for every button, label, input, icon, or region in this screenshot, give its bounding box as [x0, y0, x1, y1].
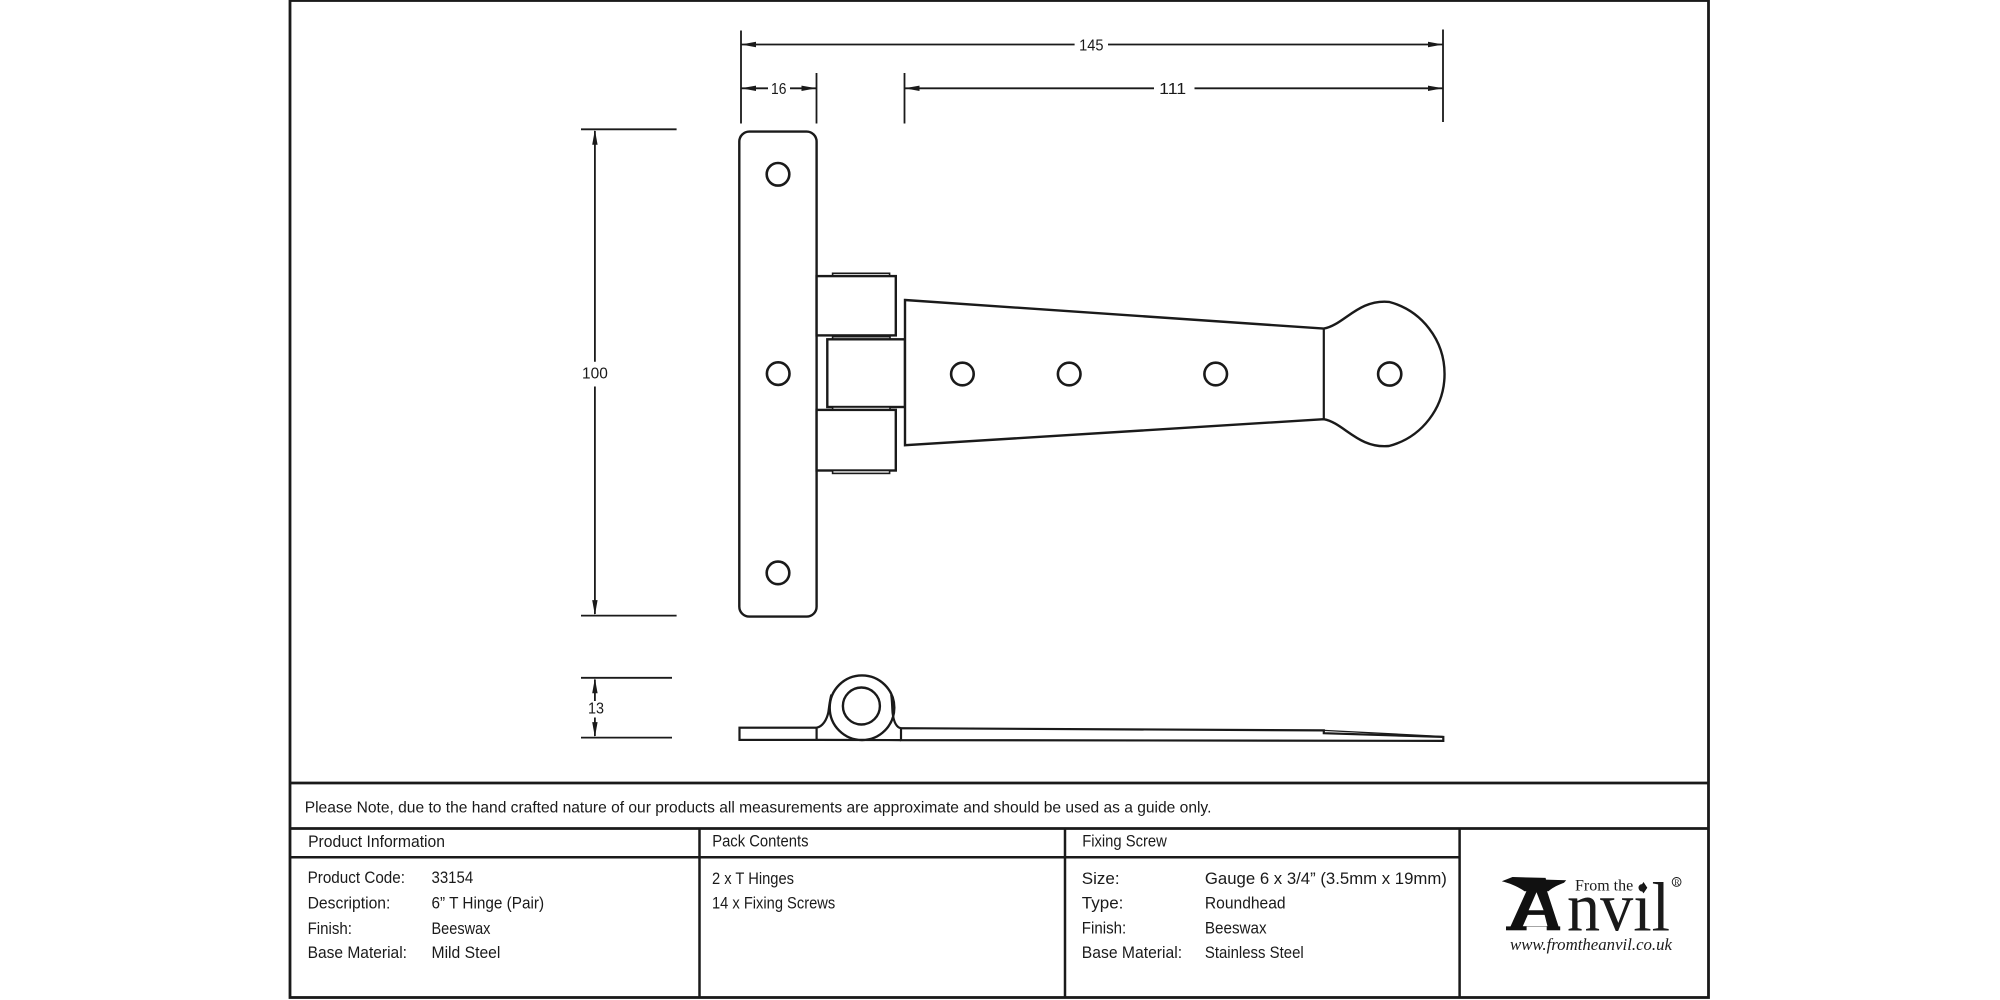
- svg-text:Roundhead: Roundhead: [1205, 894, 1286, 913]
- svg-text:13: 13: [588, 701, 604, 718]
- svg-text:33154: 33154: [432, 868, 474, 887]
- svg-text:16: 16: [771, 81, 786, 98]
- svg-text:Stainless Steel: Stainless Steel: [1205, 943, 1304, 962]
- svg-text:Type:: Type:: [1082, 894, 1124, 913]
- svg-text:Pack Contents: Pack Contents: [712, 832, 808, 851]
- svg-text:Beeswax: Beeswax: [432, 919, 491, 938]
- svg-text:Beeswax: Beeswax: [1205, 919, 1267, 938]
- svg-text:Finish:: Finish:: [1082, 919, 1126, 938]
- svg-text:Mild Steel: Mild Steel: [432, 943, 501, 962]
- svg-text:100: 100: [582, 366, 608, 383]
- svg-text:14 x Fixing Screws: 14 x Fixing Screws: [712, 894, 835, 913]
- svg-text:Finish:: Finish:: [308, 919, 352, 938]
- svg-text:Please Note, due to the hand c: Please Note, due to the hand crafted nat…: [305, 800, 1212, 817]
- svg-text:Gauge 6 x 3/4” (3.5mm x 19mm): Gauge 6 x 3/4” (3.5mm x 19mm): [1205, 869, 1447, 888]
- svg-text:Base Material:: Base Material:: [308, 943, 407, 962]
- svg-text:Description:: Description:: [308, 894, 391, 913]
- svg-text:145: 145: [1079, 38, 1103, 55]
- svg-text:Base Material:: Base Material:: [1082, 943, 1182, 962]
- svg-text:2 x T Hinges: 2 x T Hinges: [712, 869, 794, 888]
- svg-text:Product Information: Product Information: [308, 832, 445, 851]
- svg-text:www.fromtheanvil.co.uk: www.fromtheanvil.co.uk: [1510, 935, 1672, 954]
- svg-text:R: R: [1674, 878, 1680, 887]
- svg-text:111: 111: [1159, 81, 1186, 98]
- svg-text:Product Code:: Product Code:: [308, 868, 405, 887]
- svg-text:Fixing Screw: Fixing Screw: [1082, 832, 1167, 851]
- svg-text:Size:: Size:: [1082, 869, 1120, 888]
- svg-text:6” T Hinge (Pair): 6” T Hinge (Pair): [432, 894, 545, 913]
